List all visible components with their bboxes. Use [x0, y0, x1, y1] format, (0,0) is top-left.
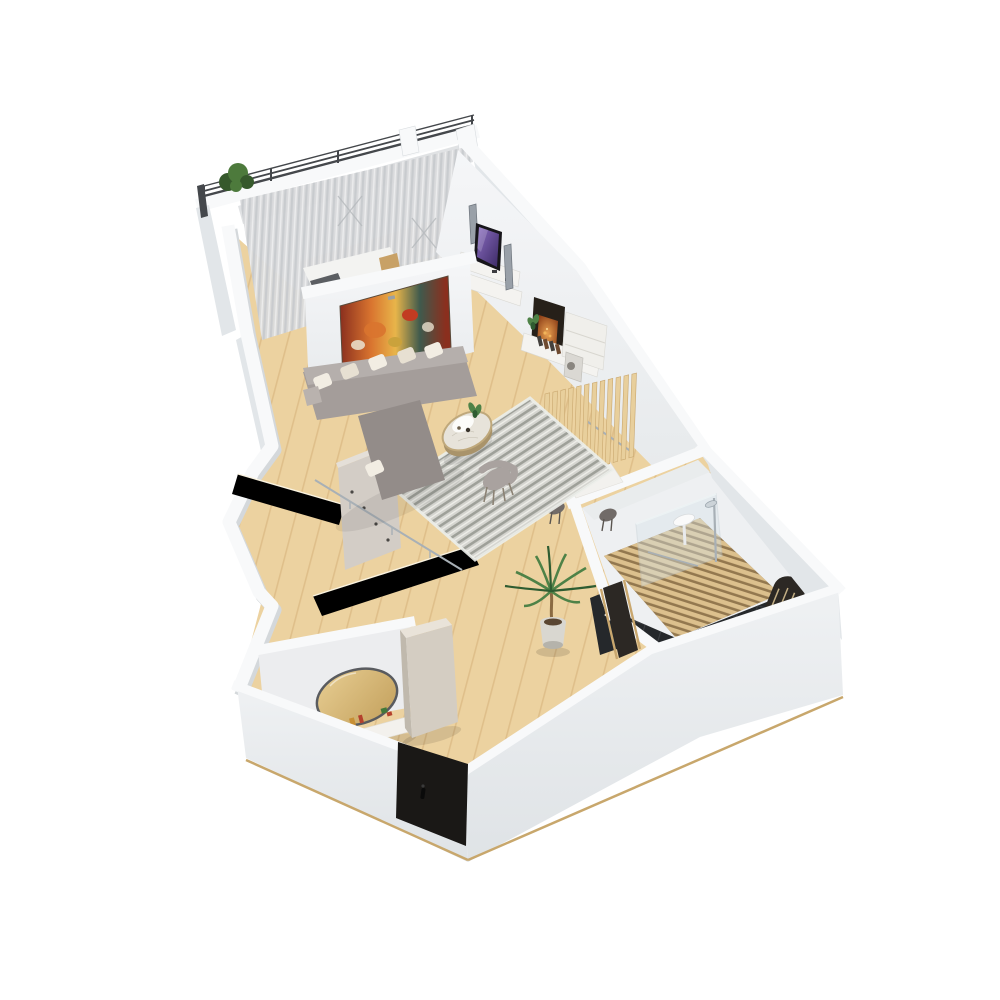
shrub — [219, 163, 254, 192]
tower-speaker-right — [504, 244, 513, 290]
floor-plan-stage: 3D isometric apartment floor plan render — [0, 0, 1000, 1000]
apartment-3d-render — [0, 0, 1000, 1000]
